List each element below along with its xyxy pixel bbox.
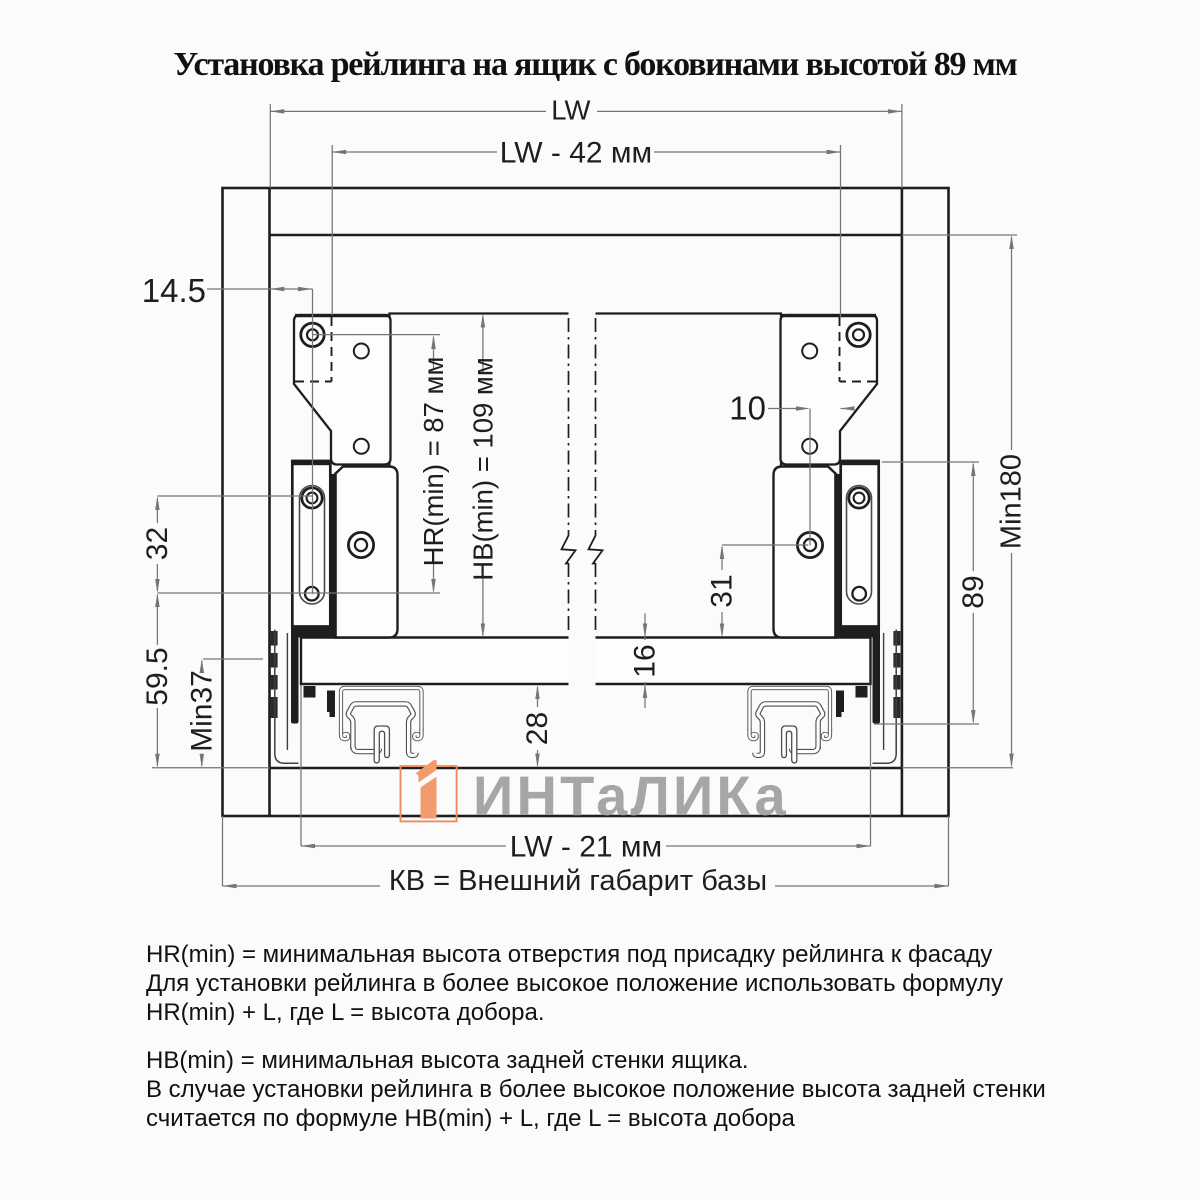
svg-text:HB(min) = 109 мм: HB(min) = 109 мм [467, 357, 498, 581]
svg-text:10: 10 [729, 390, 766, 427]
svg-text:HR(min) + L, где L = высота д: HR(min) + L, где L = высота добора. [146, 999, 545, 1026]
svg-text:14.5: 14.5 [142, 272, 206, 309]
svg-text:31: 31 [706, 574, 739, 607]
svg-text:ИНТаЛИКа: ИНТаЛИКа [473, 764, 789, 827]
svg-text:28: 28 [521, 712, 554, 745]
svg-text:LW - 21 мм: LW - 21 мм [510, 831, 662, 864]
svg-text:Min37: Min37 [185, 670, 218, 752]
svg-text:Для установки рейлинга в более: Для установки рейлинга в более высокое п… [146, 970, 1003, 997]
svg-text:59.5: 59.5 [141, 647, 174, 705]
svg-text:89: 89 [957, 575, 990, 608]
svg-text:HB(min) = минимальная высота з: HB(min) = минимальная высота задней стен… [146, 1047, 748, 1074]
svg-text:LW - 42 мм: LW - 42 мм [500, 137, 652, 170]
svg-text:32: 32 [141, 527, 174, 560]
svg-text:16: 16 [629, 644, 662, 677]
svg-text:Min180: Min180 [996, 454, 1028, 549]
svg-text:HR(min) = 87 мм: HR(min) = 87 мм [418, 357, 449, 567]
svg-text:В случае установки рейлинга в: В случае установки рейлинга в более высо… [146, 1076, 1046, 1103]
svg-text:HR(min) = минимальная высота о: HR(min) = минимальная высота отверстия п… [146, 941, 992, 968]
svg-text:LW: LW [551, 95, 590, 126]
svg-text:считается по формуле HB(min) +: считается по формуле HB(min) + L, где L … [146, 1105, 796, 1132]
svg-text:КВ = Внешний габарит базы: КВ = Внешний габарит базы [389, 865, 767, 897]
svg-text:Установка рейлинга на ящик с б: Установка рейлинга на ящик с боковинами … [173, 46, 1017, 83]
